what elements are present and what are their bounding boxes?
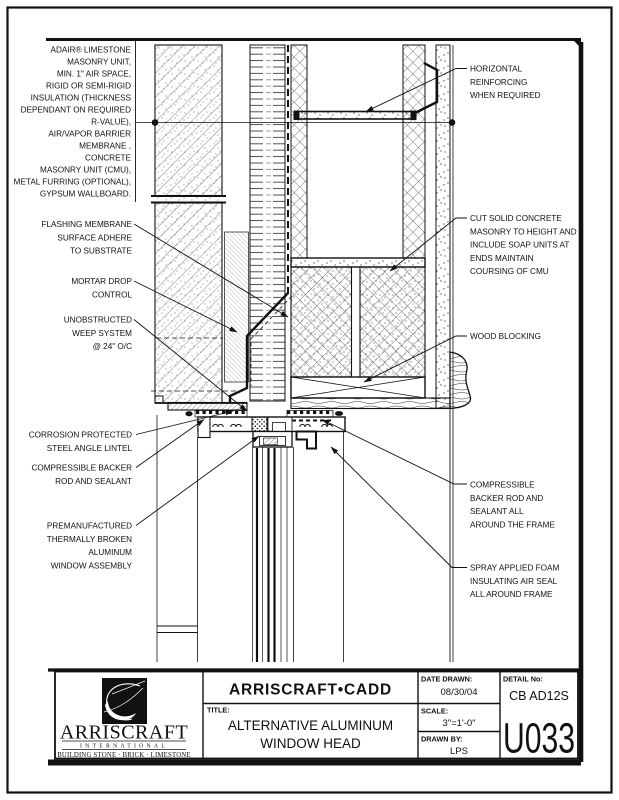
svg-text:CONTROL: CONTROL	[92, 290, 132, 299]
scale-value: 3"=1'-0"	[442, 718, 475, 729]
svg-text:CORROSION PROTECTED: CORROSION PROTECTED	[29, 431, 132, 440]
svg-text:ALUMINUM: ALUMINUM	[88, 548, 132, 557]
title-block: ARRISCRAFT INTERNATIONAL BUILDING STONE …	[48, 670, 581, 766]
svg-text:FLASHING MEMBRANE: FLASHING MEMBRANE	[41, 220, 132, 229]
svg-text:STEEL ANGLE LINTEL: STEEL ANGLE LINTEL	[47, 444, 133, 453]
logo-subtitle: INTERNATIONAL	[80, 743, 168, 749]
note-line: MASONRY UNIT (CMU),	[40, 166, 131, 175]
svg-text:INCLUDE SOAP UNITS AT: INCLUDE SOAP UNITS AT	[470, 241, 569, 250]
svg-text:@ 24" O/C: @ 24" O/C	[93, 342, 133, 351]
note-line: R-VALUE),	[91, 118, 131, 127]
detail-no-label: DETAIL No:	[503, 675, 543, 684]
label-spray-foam: SPRAY APPLIED FOAM INSULATING AIR SEAL A…	[470, 564, 560, 600]
detail-number: U033	[503, 715, 575, 763]
label-wood-blocking: WOOD BLOCKING	[470, 332, 541, 341]
note-line: INSULATION (THICKNESS	[31, 94, 132, 103]
svg-text:REINFORCING: REINFORCING	[470, 78, 527, 87]
svg-text:WHEN REQUIRED: WHEN REQUIRED	[470, 91, 541, 100]
note-line: AIR/VAPOR BARRIER	[48, 130, 131, 139]
note-line: RIGID OR SEMI-RIGID	[46, 82, 131, 91]
drawing-sheet: ADAIR® LIMESTONE MASONRY UNIT, MIN. 1" A…	[0, 0, 619, 800]
svg-text:SEALANT ALL: SEALANT ALL	[470, 507, 524, 516]
note-line: ADAIR® LIMESTONE	[51, 46, 132, 55]
svg-text:ENDS MAINTAIN: ENDS MAINTAIN	[470, 254, 534, 263]
scale-label: SCALE:	[421, 707, 448, 716]
drawn-by-label: DRAWN BY:	[421, 735, 463, 744]
svg-text:MASONRY TO HEIGHT AND: MASONRY TO HEIGHT AND	[470, 227, 577, 236]
svg-text:ROD AND SEALANT: ROD AND SEALANT	[55, 477, 132, 486]
svg-text:BACKER ROD AND: BACKER ROD AND	[470, 494, 543, 503]
svg-text:SURFACE ADHERE: SURFACE ADHERE	[57, 233, 132, 242]
sheet-title-line2: WINDOW HEAD	[260, 736, 361, 751]
svg-text:THERMALLY BROKEN: THERMALLY BROKEN	[47, 535, 132, 544]
svg-text:PREMANUFACTURED: PREMANUFACTURED	[47, 522, 132, 531]
svg-text:AROUND THE FRAME: AROUND THE FRAME	[470, 520, 555, 529]
drawn-by-value: LPS	[450, 746, 468, 757]
note-line: MASONRY UNIT,	[67, 58, 131, 67]
title-label: TITLE:	[207, 706, 230, 715]
thermal-break	[252, 417, 267, 432]
svg-text:COURSING OF CMU: COURSING OF CMU	[470, 267, 549, 276]
svg-text:WOOD BLOCKING: WOOD BLOCKING	[470, 332, 541, 341]
title-block-shadow	[48, 760, 581, 766]
cadd-header: ARRISCRAFT•CADD	[229, 682, 392, 699]
svg-text:WINDOW ASSEMBLY: WINDOW ASSEMBLY	[51, 561, 133, 570]
svg-text:HORIZONTAL: HORIZONTAL	[470, 65, 523, 74]
svg-text:CUT SOLID CONCRETE: CUT SOLID CONCRETE	[470, 214, 562, 223]
mortar-net	[225, 232, 249, 382]
svg-text:TO SUBSTRATE: TO SUBSTRATE	[70, 247, 133, 256]
svg-text:UNOBSTRUCTED: UNOBSTRUCTED	[64, 316, 132, 325]
note-line: GYPSUM WALLBOARD.	[40, 190, 131, 199]
svg-text:COMPRESSIBLE BACKER: COMPRESSIBLE BACKER	[31, 464, 132, 473]
logo-name: ARRISCRAFT	[60, 722, 188, 744]
rigid-insulation	[250, 45, 285, 401]
svg-text:MORTAR DROP: MORTAR DROP	[71, 277, 132, 286]
date-drawn-value: 08/30/04	[441, 687, 478, 698]
note-line: METAL FURRING (OPTIONAL),	[14, 178, 131, 187]
svg-text:ALL AROUND FRAME: ALL AROUND FRAME	[470, 590, 553, 599]
sheet-title-line1: ALTERNATIVE ALUMINUM	[228, 718, 393, 733]
detail-drawing: ADAIR® LIMESTONE MASONRY UNIT, MIN. 1" A…	[0, 0, 619, 800]
svg-text:INSULATING AIR SEAL: INSULATING AIR SEAL	[470, 577, 558, 586]
logo-tagline: BUILDING STONE · BRICK · LIMESTONE	[57, 752, 191, 759]
note-line: CONCRETE	[85, 154, 131, 163]
svg-text:SPRAY APPLIED FOAM: SPRAY APPLIED FOAM	[470, 564, 560, 573]
note-line: MEMBRANE ,	[79, 142, 131, 151]
note-line: DEPENDANT ON REQUIRED	[21, 106, 131, 115]
detail-code: CB AD12S	[509, 689, 569, 703]
date-drawn-label: DATE DRAWN:	[421, 675, 472, 684]
note-line: MIN. 1" AIR SPACE,	[57, 70, 131, 79]
svg-text:COMPRESSIBLE: COMPRESSIBLE	[470, 481, 535, 490]
svg-text:WEEP SYSTEM: WEEP SYSTEM	[72, 329, 132, 338]
